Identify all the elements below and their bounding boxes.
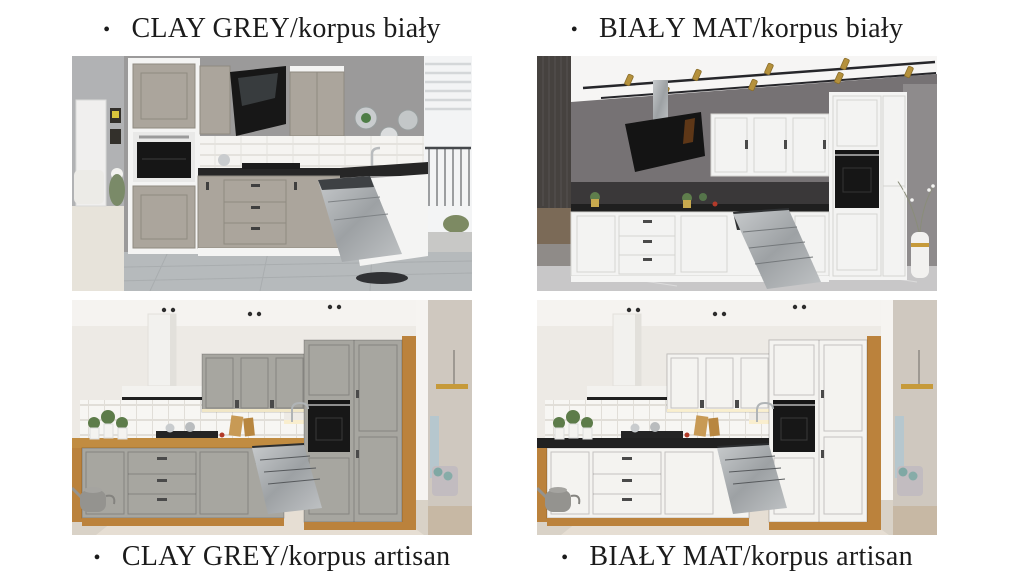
kitchen-image-clay-grey-korpus-artisan [72,300,472,535]
oven [308,400,350,452]
kitchen-render [72,56,472,291]
bullet-icon: • [94,547,101,570]
kitchen-image-bialy-mat-korpus-bialy [537,56,937,291]
kitchen-render [537,300,937,535]
base-cabinets [82,448,284,526]
upper-cabinets [667,354,773,412]
bullet-icon: • [571,19,578,42]
tall-oven-cabinets [769,336,881,530]
countertop [571,204,829,212]
ceiling-spots [72,300,472,326]
oven [773,400,815,452]
caption-bottom-left: • CLAY GREY/korpus artisan [72,537,472,577]
ceiling-spots [537,300,937,326]
floor-tray [356,272,408,284]
kitchen-render [72,300,472,535]
kitchen-image-bialy-mat-korpus-artisan [537,300,937,535]
caption-bottom-right: • BIAŁY MAT/korpus artisan [537,537,937,577]
caption-text-bottom-right: BIAŁY MAT/korpus artisan [589,541,912,573]
doorway-living-room [416,300,472,535]
adjacent-room [537,56,571,291]
tall-oven-cabinets [829,92,907,280]
kitchen-image-clay-grey-korpus-bialy [72,56,472,291]
tall-oven-cabinets [304,336,416,530]
caption-top-right: • BIAŁY MAT/korpus biały [537,9,937,49]
end-panel [537,448,547,522]
oven [835,150,879,208]
balcony-window [424,56,472,252]
upper-cabinets [711,114,829,176]
caption-text-top-right: BIAŁY MAT/korpus biały [599,13,903,45]
bullet-icon: • [103,19,110,42]
end-panel [72,448,82,522]
caption-top-left: • CLAY GREY/korpus biały [72,9,472,49]
tall-oven-cabinet [128,58,200,254]
base-cabinets [547,448,749,526]
kitchen-render [537,56,937,291]
backsplash [571,182,829,204]
upper-cabinets [202,354,308,412]
caption-text-bottom-left: CLAY GREY/korpus artisan [122,541,451,573]
caption-text-top-left: CLAY GREY/korpus biały [131,13,440,45]
doorway-living-room [881,300,937,535]
adjacent-room [72,56,125,291]
cooker-hood [230,66,286,136]
oven [133,132,195,182]
armchair [74,170,104,204]
bullet-icon: • [561,547,568,570]
plant [109,174,125,206]
